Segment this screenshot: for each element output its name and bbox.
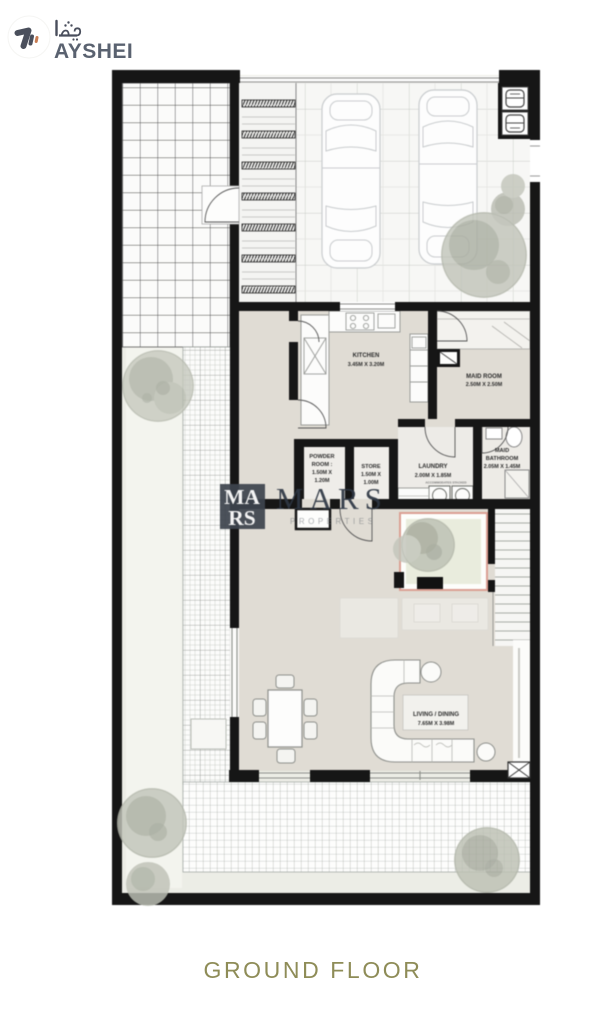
svg-text:BATHROOM: BATHROOM bbox=[486, 456, 519, 462]
svg-text:LIVING / DINING: LIVING / DINING bbox=[413, 712, 459, 718]
svg-text:POWDER: POWDER bbox=[309, 454, 334, 460]
svg-text:ACCOMMODATES STACKED: ACCOMMODATES STACKED bbox=[425, 481, 467, 485]
svg-text:3.45M X 3.20M: 3.45M X 3.20M bbox=[348, 362, 385, 368]
svg-text:2.00M X 1.85M: 2.00M X 1.85M bbox=[415, 473, 452, 479]
svg-text:MAID: MAID bbox=[495, 448, 509, 454]
svg-text:ROOM :: ROOM : bbox=[312, 462, 333, 468]
svg-text:STORE: STORE bbox=[361, 464, 380, 470]
svg-text:1.50M X: 1.50M X bbox=[361, 472, 381, 478]
svg-text:KITCHEN: KITCHEN bbox=[353, 353, 380, 359]
svg-text:2.50M X 2.50M: 2.50M X 2.50M bbox=[466, 382, 503, 388]
svg-text:MAID ROOM: MAID ROOM bbox=[466, 374, 502, 380]
svg-text:1.50M X: 1.50M X bbox=[312, 470, 332, 476]
svg-text:7.65M X 3.98M: 7.65M X 3.98M bbox=[418, 721, 455, 727]
svg-text:RS: RS bbox=[228, 506, 256, 530]
svg-text:2.05M X 1.45M: 2.05M X 1.45M bbox=[484, 464, 521, 470]
svg-text:LAUNDRY: LAUNDRY bbox=[418, 464, 447, 470]
svg-text:MARS: MARS bbox=[276, 481, 388, 516]
svg-text:PROPERTIES: PROPERTIES bbox=[290, 517, 376, 526]
